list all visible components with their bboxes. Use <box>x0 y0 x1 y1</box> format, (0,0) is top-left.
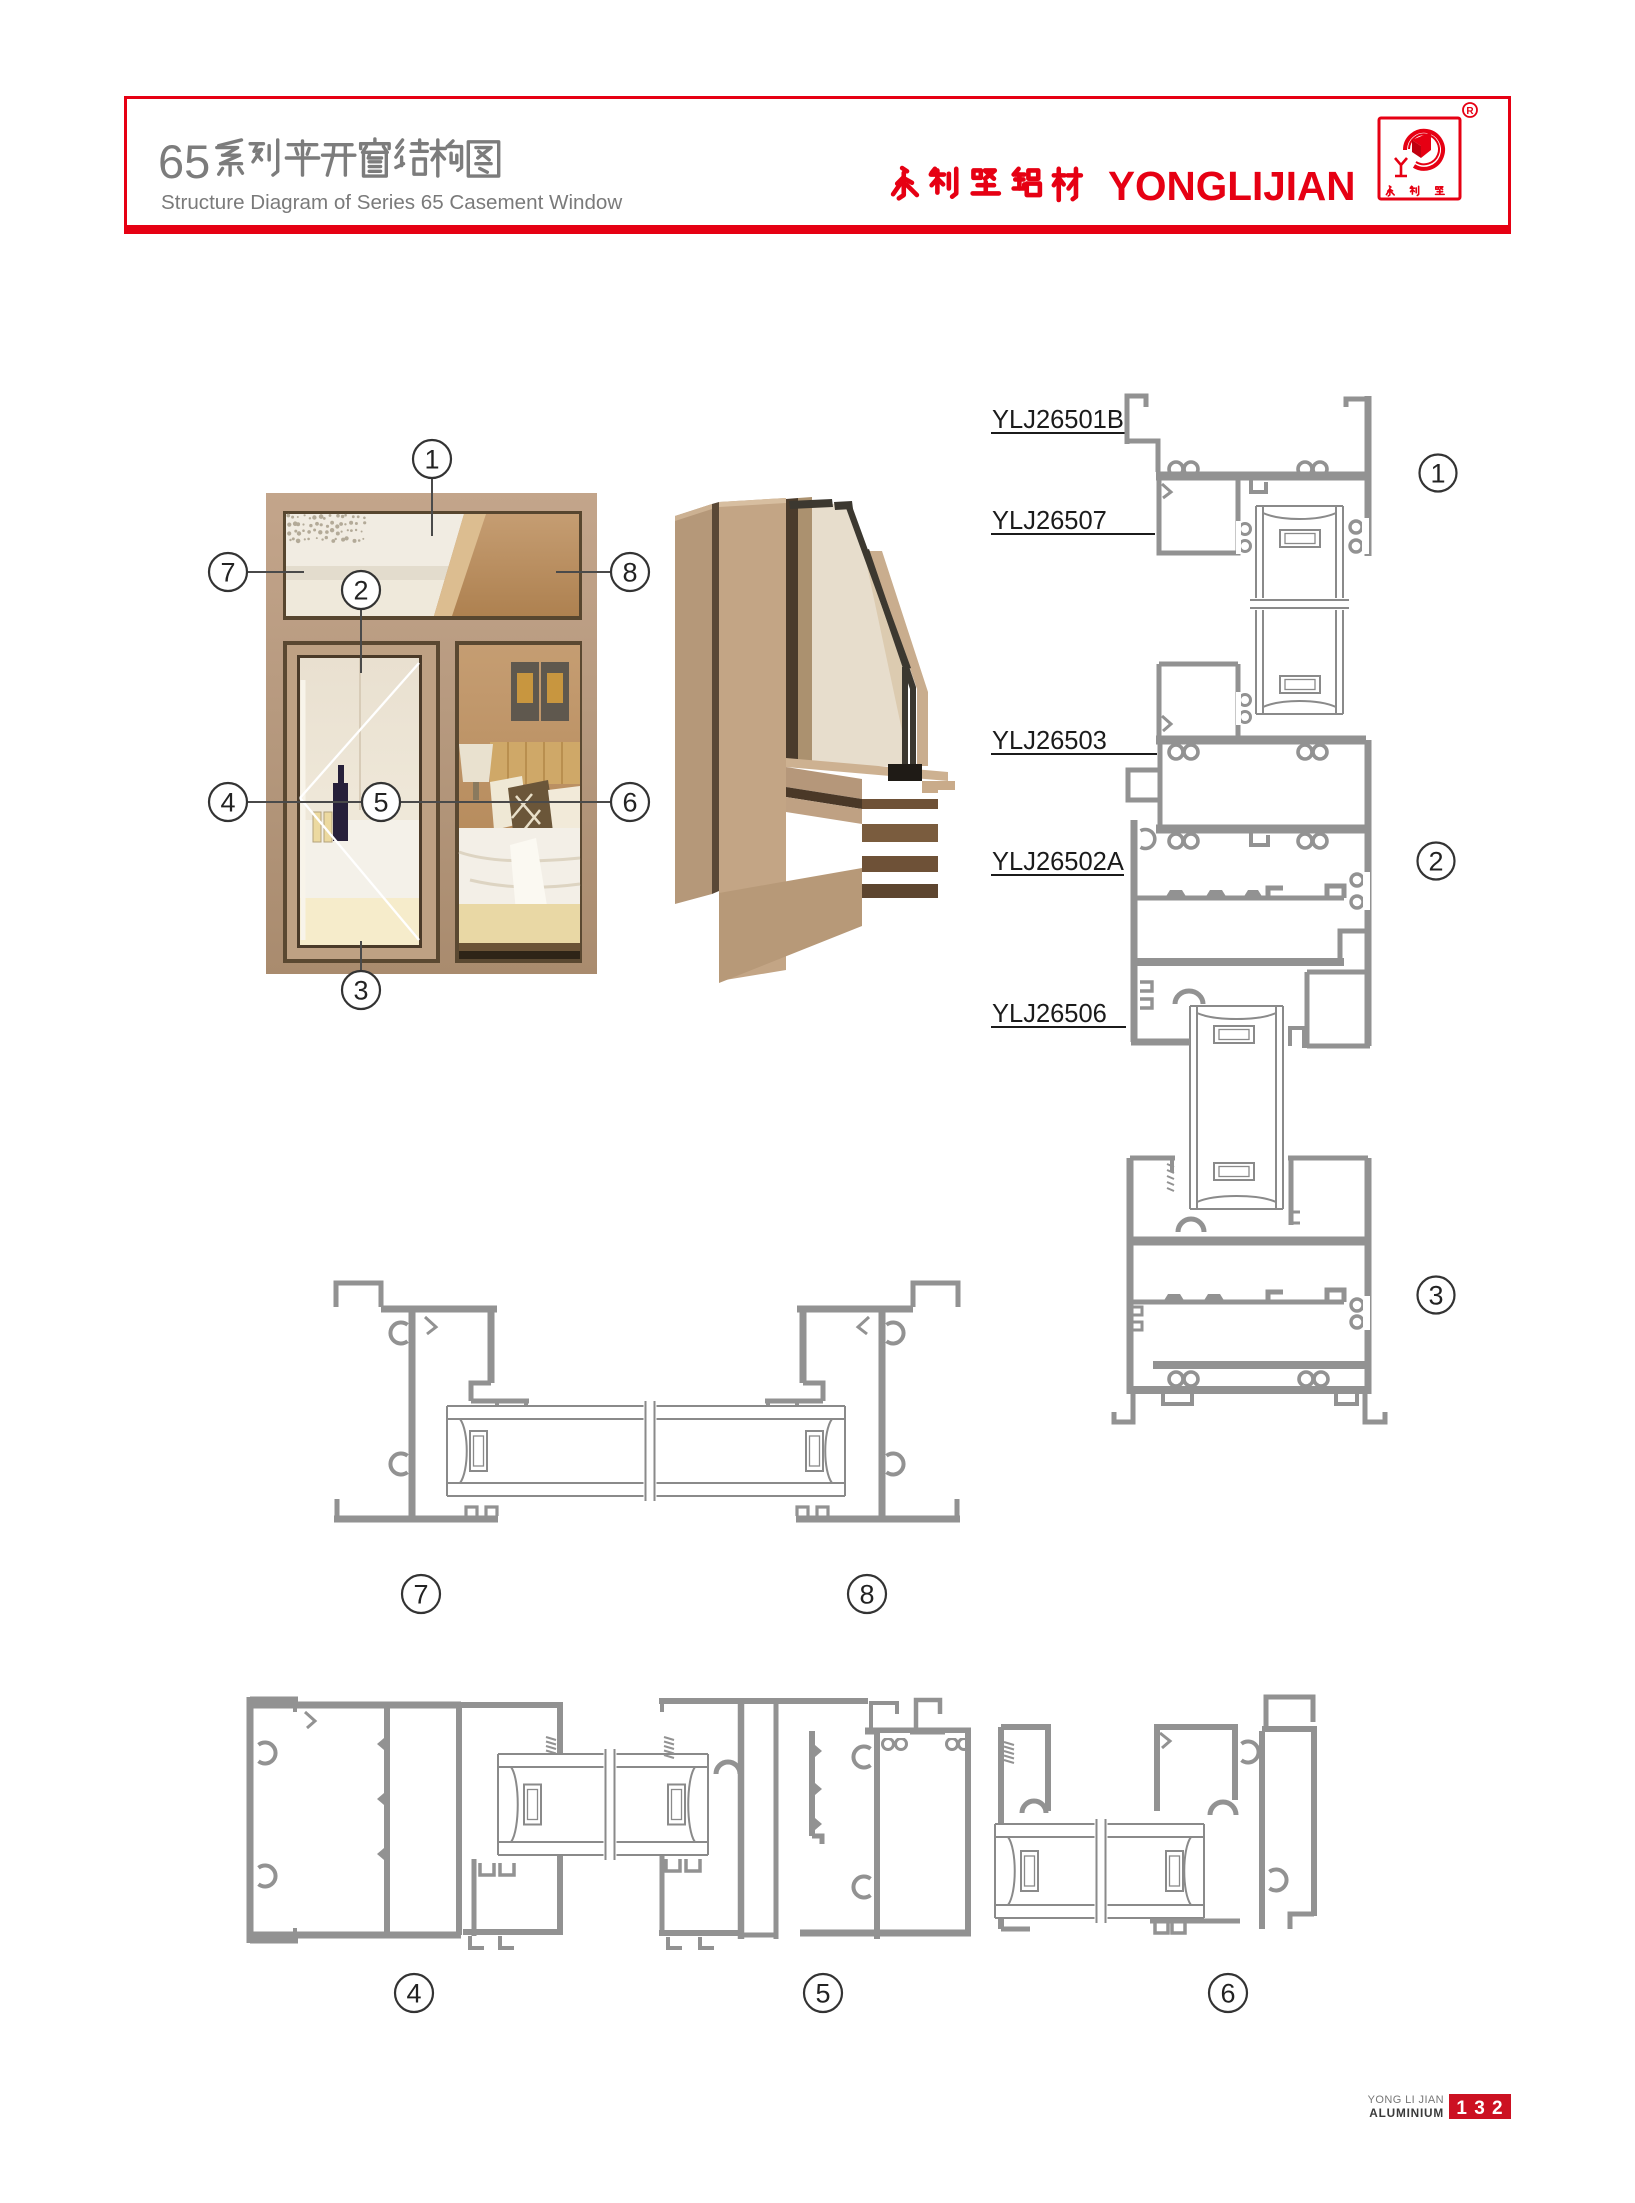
svg-text:5: 5 <box>815 1979 830 2009</box>
svg-text:8: 8 <box>859 1580 874 1610</box>
svg-text:R: R <box>1466 106 1474 117</box>
svg-text:3: 3 <box>353 976 368 1006</box>
svg-text:2: 2 <box>1428 847 1443 877</box>
svg-text:YLJ26503: YLJ26503 <box>992 727 1107 755</box>
svg-text:YLJ26502A: YLJ26502A <box>992 848 1124 876</box>
svg-text:YONG LI JIAN: YONG LI JIAN <box>1368 2094 1444 2106</box>
svg-text:6: 6 <box>622 788 637 818</box>
svg-text:YONGLIJIAN: YONGLIJIAN <box>1108 163 1356 209</box>
svg-text:7: 7 <box>220 558 235 588</box>
svg-text:1: 1 <box>424 445 439 475</box>
svg-text:YLJ26506: YLJ26506 <box>992 1000 1107 1028</box>
svg-text:YLJ26507: YLJ26507 <box>992 507 1107 535</box>
svg-text:5: 5 <box>373 788 388 818</box>
svg-text:4: 4 <box>220 788 235 818</box>
svg-text:4: 4 <box>406 1979 421 2009</box>
svg-text:ALUMINIUM: ALUMINIUM <box>1369 2106 1444 2120</box>
svg-text:65: 65 <box>158 135 210 188</box>
svg-text:1: 1 <box>1430 459 1445 489</box>
svg-text:8: 8 <box>622 558 637 588</box>
svg-text:Structure Diagram of Series 65: Structure Diagram of Series 65 Casement … <box>161 191 622 214</box>
svg-text:YLJ26501B: YLJ26501B <box>992 406 1124 434</box>
svg-text:7: 7 <box>413 1580 428 1610</box>
svg-text:3: 3 <box>1428 1281 1443 1311</box>
svg-text:2: 2 <box>353 576 368 606</box>
svg-text:6: 6 <box>1220 1979 1235 2009</box>
svg-text:1 3 2: 1 3 2 <box>1456 2098 1503 2119</box>
